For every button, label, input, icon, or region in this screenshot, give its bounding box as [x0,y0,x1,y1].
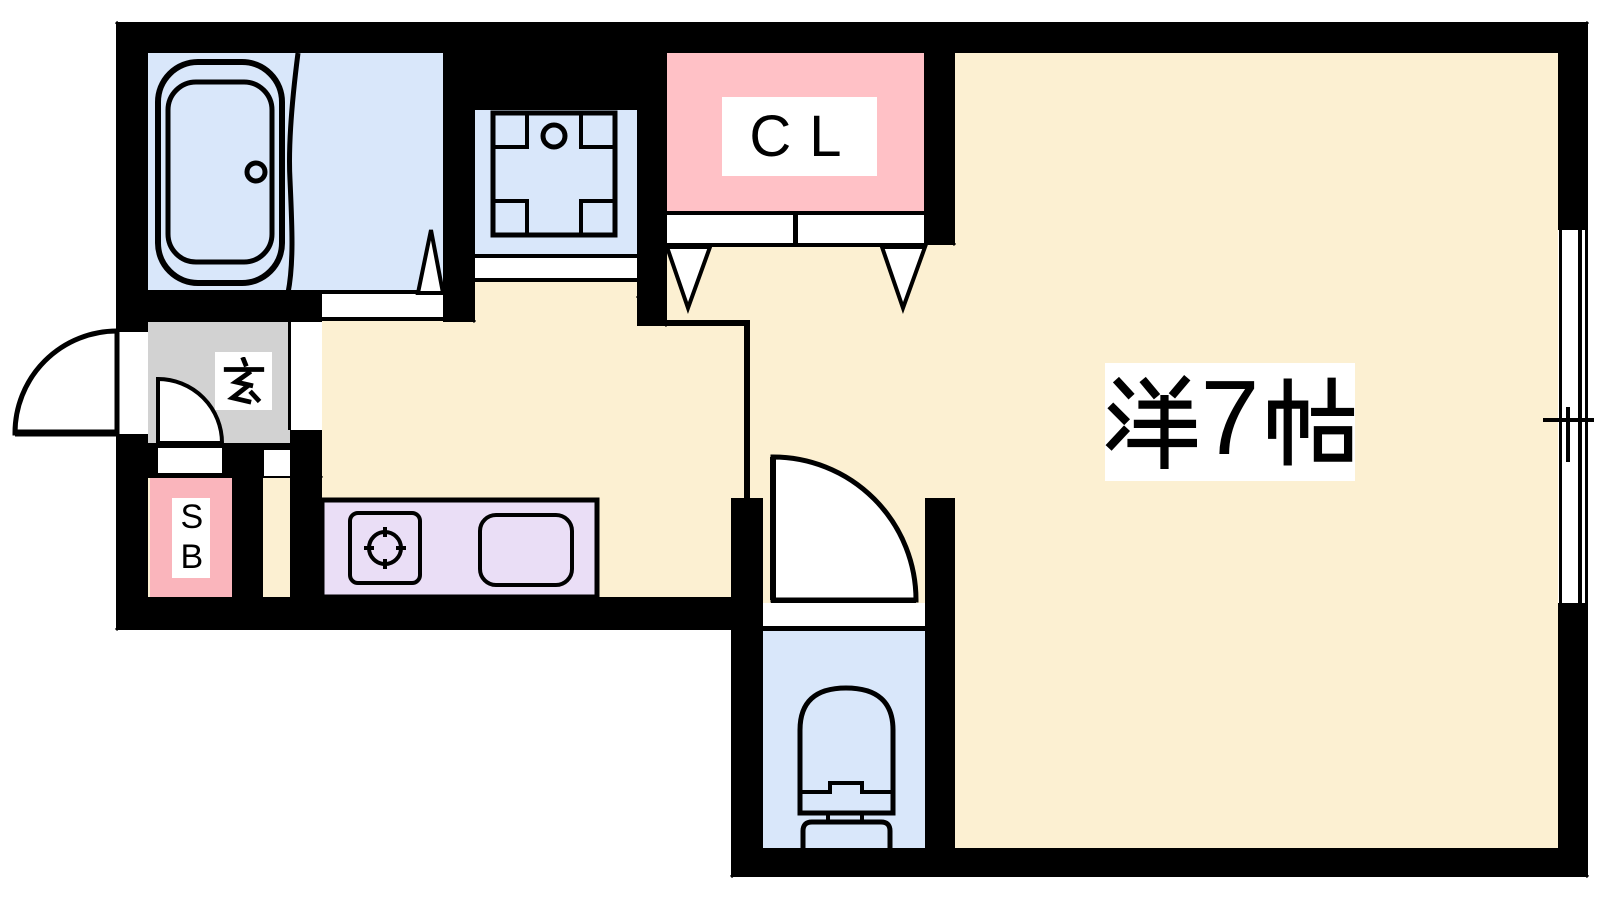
room-size-number: 7 [1201,365,1260,471]
wall-left-upper [116,22,148,332]
genkan-step-block [290,430,322,443]
washroom-threshold [322,293,447,320]
shoebox-label-text: SB [173,498,209,578]
kanji-jou-icon [1263,375,1355,469]
wall-right-upper [1558,22,1588,230]
wall-bottom [731,848,1588,877]
closet-label: CL [722,97,877,176]
wall-shoebox-right [232,478,263,597]
alcove-threshold-top-line [475,254,637,258]
genkan-step [290,322,322,430]
washroom-threshold-bottom-line [322,317,447,321]
closet-label-text: CL [749,103,859,170]
wall-washroom-divider [443,53,475,322]
wall-alcove-header [475,53,637,110]
kitchen-counter [322,500,597,597]
wall-kitchen-bottom [116,597,731,630]
wall-top [116,22,1588,53]
genkan-band-opening-2 [264,450,290,476]
wall-counter-left [290,478,322,597]
genkan-band-opening-1 [158,448,222,473]
window-center-tick [1543,418,1594,422]
toilet-threshold [763,603,925,628]
kanji-you-icon [1105,375,1197,469]
shoebox-label: SB [172,498,210,578]
main-room-label: 洋7帖 7 [1105,363,1355,481]
toilet-threshold-bottom-line [763,626,925,631]
wall-right-lower [1558,603,1588,877]
wall-toilet-right [925,498,955,848]
alcove-threshold-bottom-line [475,278,637,282]
wall-alcove-closet-divider [637,53,667,326]
alcove-threshold [475,257,637,281]
genkan-label: 玄 [215,352,272,410]
kanji-gen-icon [220,357,268,405]
floorplan-canvas: CL 玄 SB 洋7帖 7 [0,0,1600,900]
wall-bath-bottom [148,290,322,322]
entrance-door-arc [15,331,117,433]
wall-toilet-left [731,498,763,848]
genkan-step-divider-line [288,322,291,430]
partition-line-v [744,320,750,502]
closet-door-divider [793,213,798,247]
